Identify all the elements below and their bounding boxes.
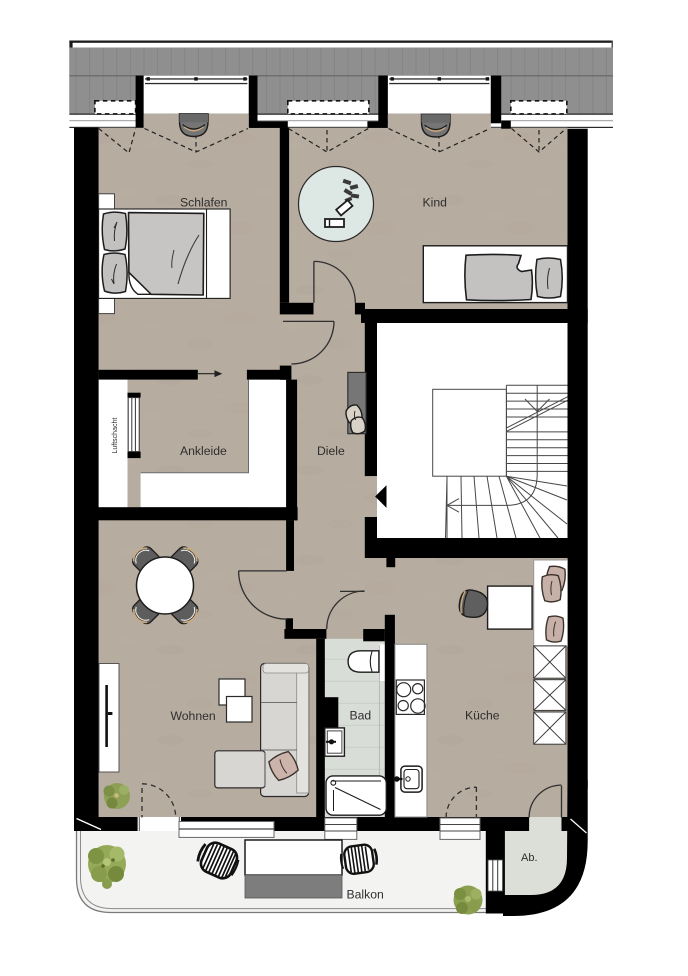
svg-text:Küche: Küche: [465, 709, 500, 723]
svg-text:Schlafen: Schlafen: [180, 196, 227, 210]
svg-text:Ankleide: Ankleide: [180, 444, 227, 458]
svg-text:Kind: Kind: [423, 196, 447, 210]
svg-text:Ab.: Ab.: [521, 852, 538, 864]
svg-text:Luftschacht: Luftschacht: [112, 418, 119, 454]
svg-text:Wohnen: Wohnen: [171, 709, 216, 723]
svg-text:Diele: Diele: [317, 444, 345, 458]
svg-text:Balkon: Balkon: [347, 888, 384, 902]
svg-text:Bad: Bad: [350, 709, 372, 723]
